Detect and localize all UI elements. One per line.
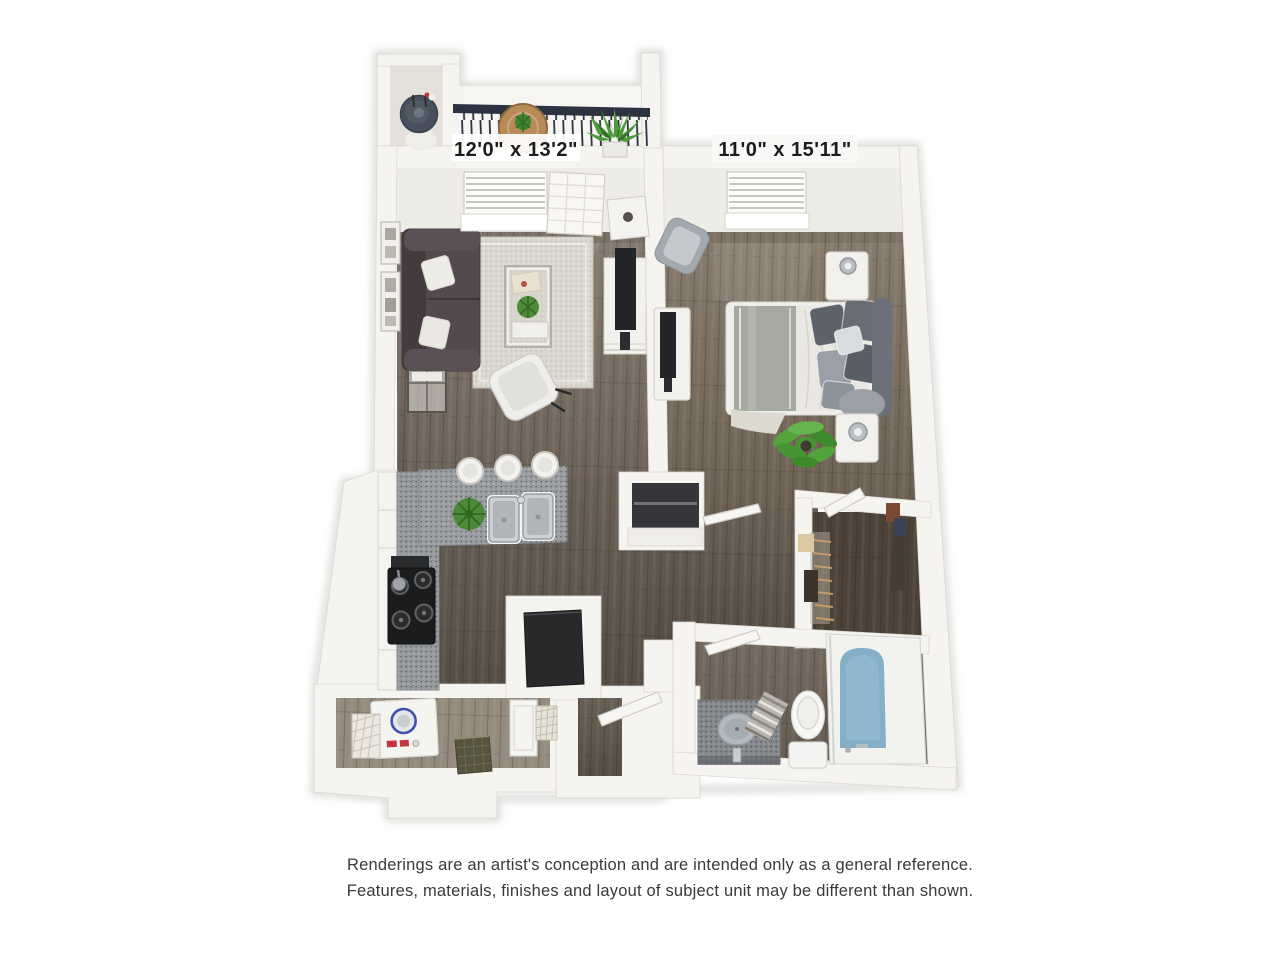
svg-text:Renderings are an artist's con: Renderings are an artist's conception an… — [347, 856, 973, 874]
svg-text:Features, materials, finishes: Features, materials, finishes and layout… — [347, 882, 974, 900]
svg-text:11'0" x 15'11": 11'0" x 15'11" — [718, 139, 851, 161]
svg-text:12'0" x 13'2": 12'0" x 13'2" — [454, 139, 578, 161]
